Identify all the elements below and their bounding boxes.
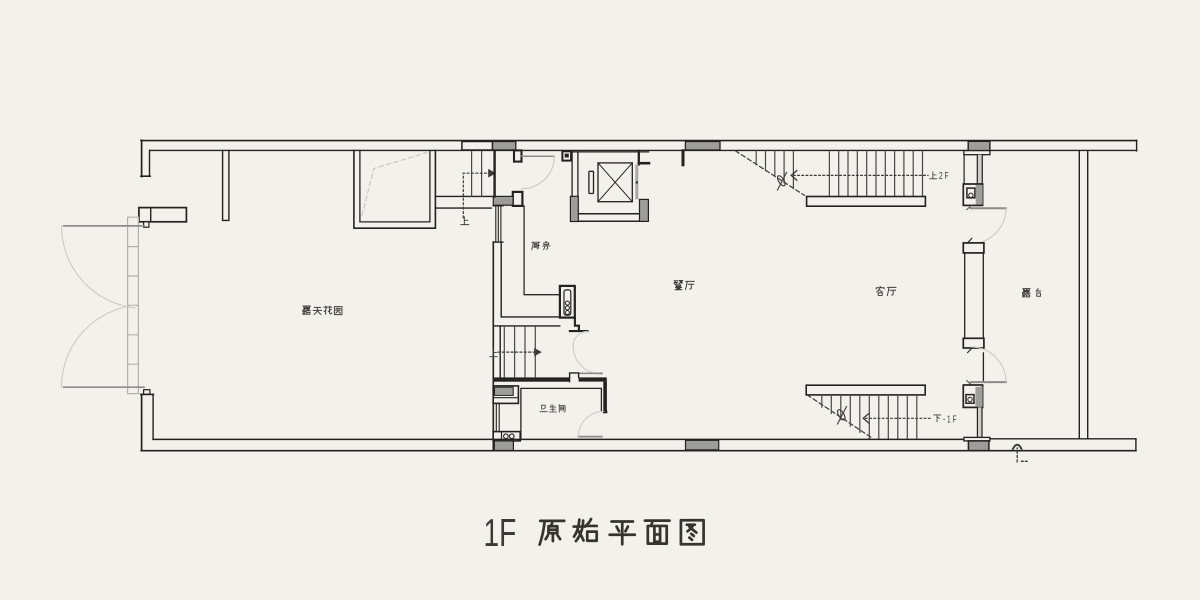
svg-text:2 F: 2 F: [939, 170, 949, 182]
svg-text:- 1 F: - 1 F: [943, 414, 957, 426]
svg-text:1F: 1F: [484, 512, 517, 556]
